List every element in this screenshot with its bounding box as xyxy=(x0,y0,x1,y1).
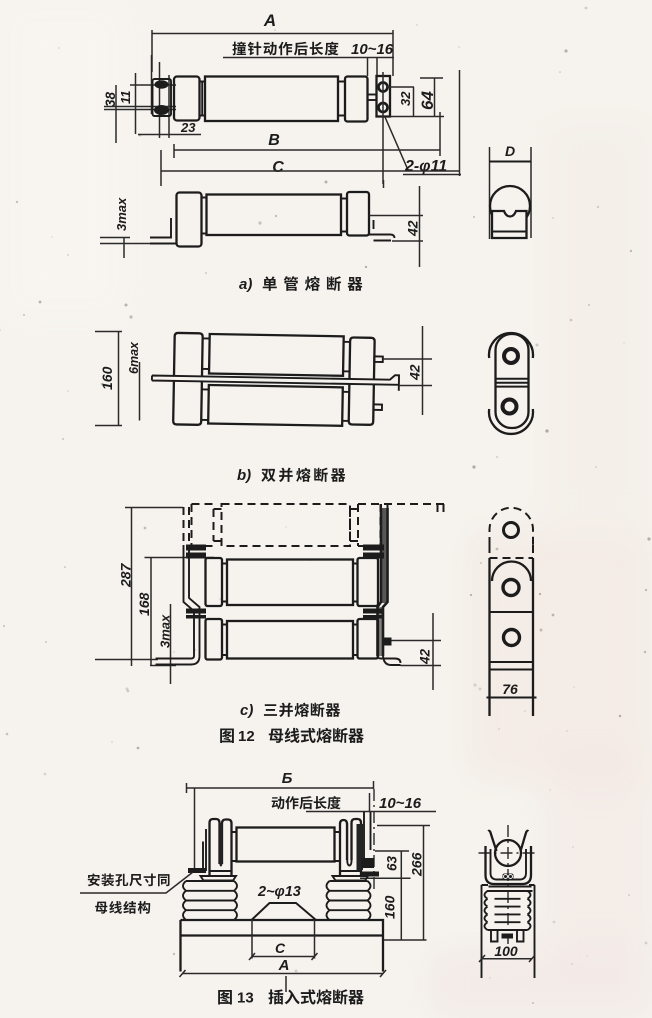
svg-text:32: 32 xyxy=(398,91,413,106)
svg-text:11: 11 xyxy=(118,91,133,105)
svg-text:12: 12 xyxy=(238,728,255,745)
svg-text:10~16: 10~16 xyxy=(379,795,422,812)
svg-text:13: 13 xyxy=(237,990,254,1007)
svg-text:63: 63 xyxy=(385,855,400,871)
svg-text:23: 23 xyxy=(180,120,196,135)
svg-text:c): c) xyxy=(240,702,253,719)
svg-text:C: C xyxy=(272,159,284,176)
svg-text:38: 38 xyxy=(103,91,118,107)
svg-text:C: C xyxy=(275,940,286,956)
svg-text:160: 160 xyxy=(99,366,115,390)
svg-text:42: 42 xyxy=(418,648,433,665)
svg-text:42: 42 xyxy=(407,364,423,381)
svg-text:168: 168 xyxy=(136,592,152,616)
svg-text:76: 76 xyxy=(502,681,518,697)
svg-text:3max: 3max xyxy=(158,614,173,648)
svg-text:D: D xyxy=(505,143,515,159)
svg-text:160: 160 xyxy=(382,895,398,919)
svg-text:b): b) xyxy=(237,467,251,484)
svg-text:2~φ13: 2~φ13 xyxy=(257,884,301,900)
svg-text:266: 266 xyxy=(409,852,425,877)
svg-text:a): a) xyxy=(239,276,252,293)
svg-text:Б: Б xyxy=(282,770,293,787)
svg-text:2-φ11: 2-φ11 xyxy=(404,158,447,175)
svg-text:A: A xyxy=(278,957,290,974)
svg-text:6max: 6max xyxy=(127,341,141,374)
svg-text:3max: 3max xyxy=(114,197,129,231)
svg-text:A: A xyxy=(263,11,276,30)
svg-text:10~16: 10~16 xyxy=(351,41,394,58)
svg-text:287: 287 xyxy=(118,562,134,588)
svg-text:64: 64 xyxy=(418,91,437,110)
svg-text:100: 100 xyxy=(494,943,518,959)
svg-text:42: 42 xyxy=(405,220,421,237)
svg-text:B: B xyxy=(268,132,280,149)
